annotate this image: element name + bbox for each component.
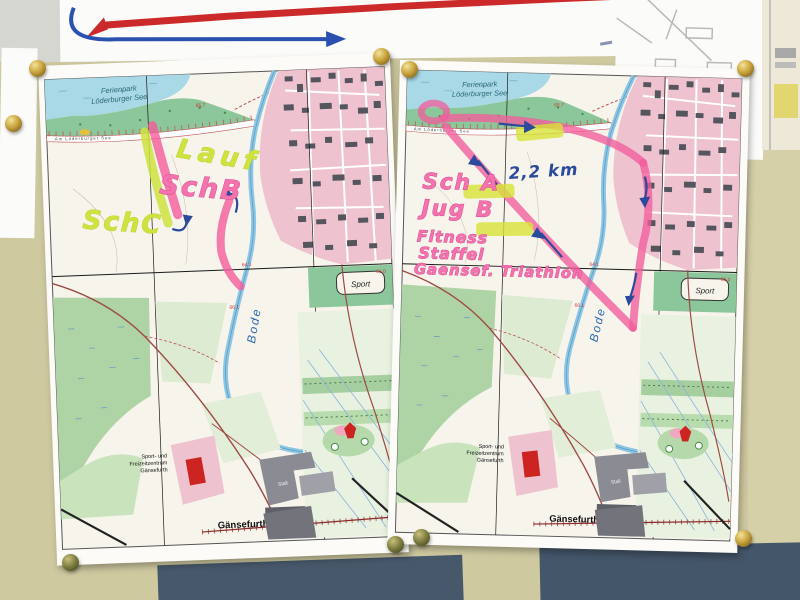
- background-sheet-left-strip: [0, 48, 38, 239]
- push-pin-2: [5, 115, 22, 132]
- wall-right: [748, 130, 800, 600]
- push-pin-6: [62, 554, 79, 571]
- fragment-bar-2: [775, 62, 796, 68]
- handwriting-schc: SchC: [82, 205, 164, 240]
- push-pin-3: [373, 48, 390, 65]
- red-arrowhead: [86, 17, 108, 37]
- push-pin-1: [29, 60, 46, 77]
- handwriting-distance: 2,2 km: [508, 159, 579, 183]
- push-pin-9: [735, 530, 752, 547]
- fragment-yellow-block: [774, 84, 798, 118]
- push-pin-5: [737, 60, 754, 77]
- faint-sketch-lines: [615, 0, 733, 72]
- red-route-line: [100, 0, 690, 25]
- right-map-sheet: 2,2 km Sch A Jug B Fitness Staffel Gaens…: [387, 60, 750, 553]
- fragment-bar-1: [775, 48, 796, 58]
- left-map-sheet: Lauf SchB SchC: [38, 52, 409, 565]
- push-pin-7: [387, 536, 404, 553]
- handwriting-jug-b: Jug B: [417, 196, 494, 223]
- map-fragment-strip: [762, 0, 800, 150]
- blue-arrowhead-icon: [326, 31, 346, 47]
- photo-of-pinned-maps: Am Löderburger See Ferienpark Löderburge…: [0, 0, 800, 600]
- push-pin-8: [413, 529, 430, 546]
- handwriting-sch-a: Sch A: [422, 170, 501, 197]
- dark-panel-left: [157, 555, 463, 600]
- push-pin-4: [401, 61, 418, 78]
